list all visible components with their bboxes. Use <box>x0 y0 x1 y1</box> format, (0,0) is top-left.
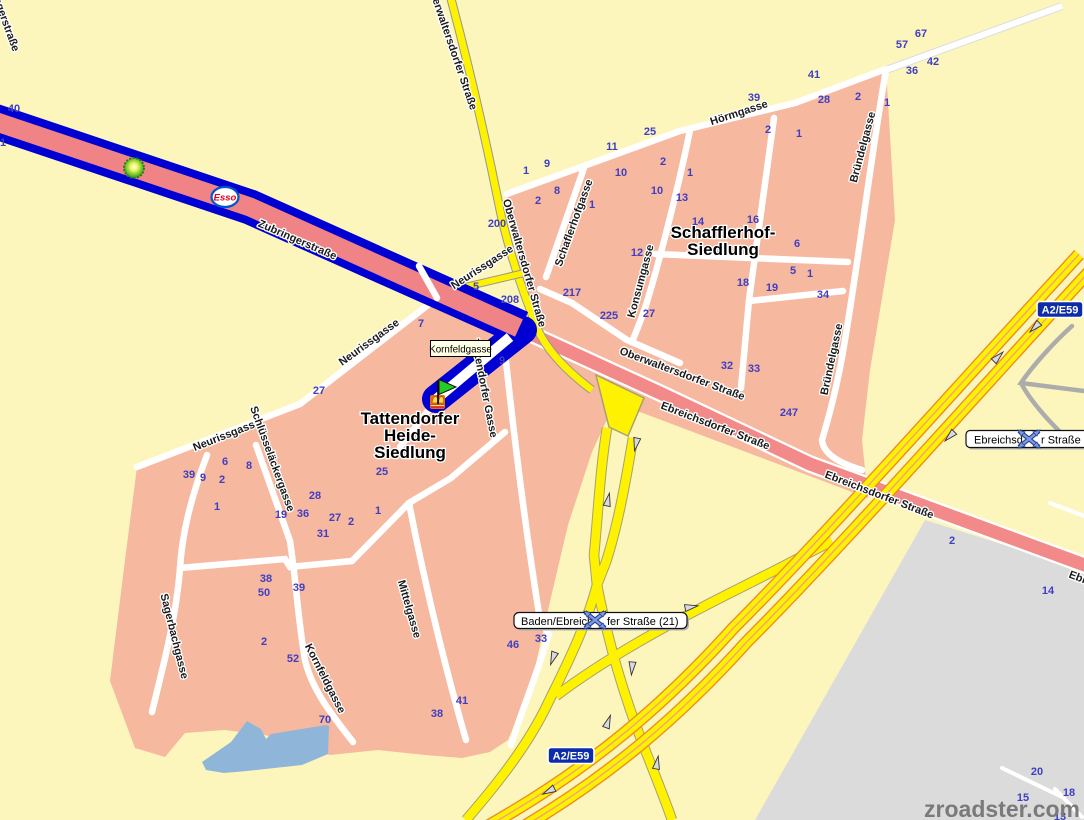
svg-text:32: 32 <box>721 360 733 372</box>
svg-text:2: 2 <box>765 124 771 136</box>
svg-text:8: 8 <box>246 460 252 472</box>
svg-text:2: 2 <box>535 195 541 207</box>
svg-text:fer Straße (21): fer Straße (21) <box>607 616 679 628</box>
svg-text:39: 39 <box>748 92 760 104</box>
svg-text:27: 27 <box>313 385 325 397</box>
svg-text:28: 28 <box>818 94 830 106</box>
svg-text:39: 39 <box>293 582 305 594</box>
svg-text:7: 7 <box>418 318 424 330</box>
svg-text:41: 41 <box>808 69 820 81</box>
svg-text:40: 40 <box>8 103 20 115</box>
svg-text:247: 247 <box>780 407 798 419</box>
svg-text:1: 1 <box>884 97 890 109</box>
svg-text:9: 9 <box>200 472 206 484</box>
svg-text:8: 8 <box>554 185 560 197</box>
svg-text:2: 2 <box>949 535 955 547</box>
svg-text:38: 38 <box>431 708 443 720</box>
svg-text:14: 14 <box>692 216 705 228</box>
svg-text:217: 217 <box>563 287 581 299</box>
svg-text:r Straße: r Straße <box>1041 435 1081 447</box>
svg-text:67: 67 <box>915 28 927 40</box>
svg-text:1: 1 <box>796 128 802 140</box>
svg-text:1: 1 <box>375 505 381 517</box>
svg-text:36: 36 <box>297 508 309 520</box>
svg-text:1: 1 <box>523 165 529 177</box>
svg-text:25: 25 <box>644 126 656 138</box>
svg-text:9: 9 <box>499 355 505 367</box>
svg-text:Ebreichsd: Ebreichsd <box>974 435 1023 447</box>
svg-text:208: 208 <box>501 294 519 306</box>
svg-text:50: 50 <box>258 587 270 599</box>
svg-text:10: 10 <box>651 185 663 197</box>
svg-text:A2/E59: A2/E59 <box>1042 305 1079 317</box>
svg-text:27: 27 <box>643 308 655 320</box>
svg-text:5: 5 <box>790 265 796 277</box>
svg-text:10: 10 <box>615 167 627 179</box>
svg-text:2: 2 <box>219 474 225 486</box>
svg-text:36: 36 <box>906 65 918 77</box>
svg-text:70: 70 <box>319 714 331 726</box>
svg-text:5: 5 <box>473 281 479 293</box>
svg-text:19: 19 <box>275 509 287 521</box>
svg-text:1: 1 <box>214 501 220 513</box>
svg-text:33: 33 <box>748 363 760 375</box>
svg-text:1: 1 <box>589 199 595 211</box>
svg-text:33: 33 <box>535 633 547 645</box>
svg-text:1: 1 <box>0 137 6 149</box>
svg-text:2: 2 <box>660 156 666 168</box>
svg-text:200: 200 <box>488 218 506 230</box>
svg-text:28: 28 <box>309 490 321 502</box>
svg-text:Siedlung: Siedlung <box>374 443 446 462</box>
svg-text:12: 12 <box>631 247 643 259</box>
svg-text:52: 52 <box>287 653 299 665</box>
svg-text:31: 31 <box>317 528 329 540</box>
svg-text:13: 13 <box>676 192 688 204</box>
svg-text:Esso: Esso <box>214 193 237 204</box>
svg-text:38: 38 <box>260 573 272 585</box>
svg-text:2: 2 <box>261 636 267 648</box>
svg-text:Siedlung: Siedlung <box>687 240 759 259</box>
svg-text:9: 9 <box>544 158 550 170</box>
svg-text:41: 41 <box>456 695 468 707</box>
svg-text:6: 6 <box>222 456 228 468</box>
svg-text:46: 46 <box>507 639 519 651</box>
svg-text:27: 27 <box>329 512 341 524</box>
svg-text:25: 25 <box>376 466 388 478</box>
svg-text:20: 20 <box>1031 766 1043 778</box>
svg-text:42: 42 <box>927 56 939 68</box>
svg-text:57: 57 <box>896 39 908 51</box>
svg-text:225: 225 <box>600 310 618 322</box>
svg-text:6: 6 <box>794 238 800 250</box>
svg-text:Kornfeldgasse: Kornfeldgasse <box>429 345 492 356</box>
svg-text:A2/E59: A2/E59 <box>553 751 590 763</box>
svg-text:16: 16 <box>747 214 759 226</box>
svg-text:34: 34 <box>817 289 830 301</box>
svg-text:11: 11 <box>606 141 618 153</box>
svg-text:39: 39 <box>183 469 195 481</box>
svg-text:2: 2 <box>855 91 861 103</box>
svg-text:1: 1 <box>687 167 693 179</box>
svg-text:zroadster.com: zroadster.com <box>924 796 1080 820</box>
svg-text:18: 18 <box>737 277 749 289</box>
svg-text:19: 19 <box>766 282 778 294</box>
svg-text:Baden/Ebreich: Baden/Ebreich <box>521 616 593 628</box>
svg-text:2: 2 <box>348 516 354 528</box>
svg-text:1: 1 <box>807 268 813 280</box>
svg-text:14: 14 <box>1042 585 1055 597</box>
